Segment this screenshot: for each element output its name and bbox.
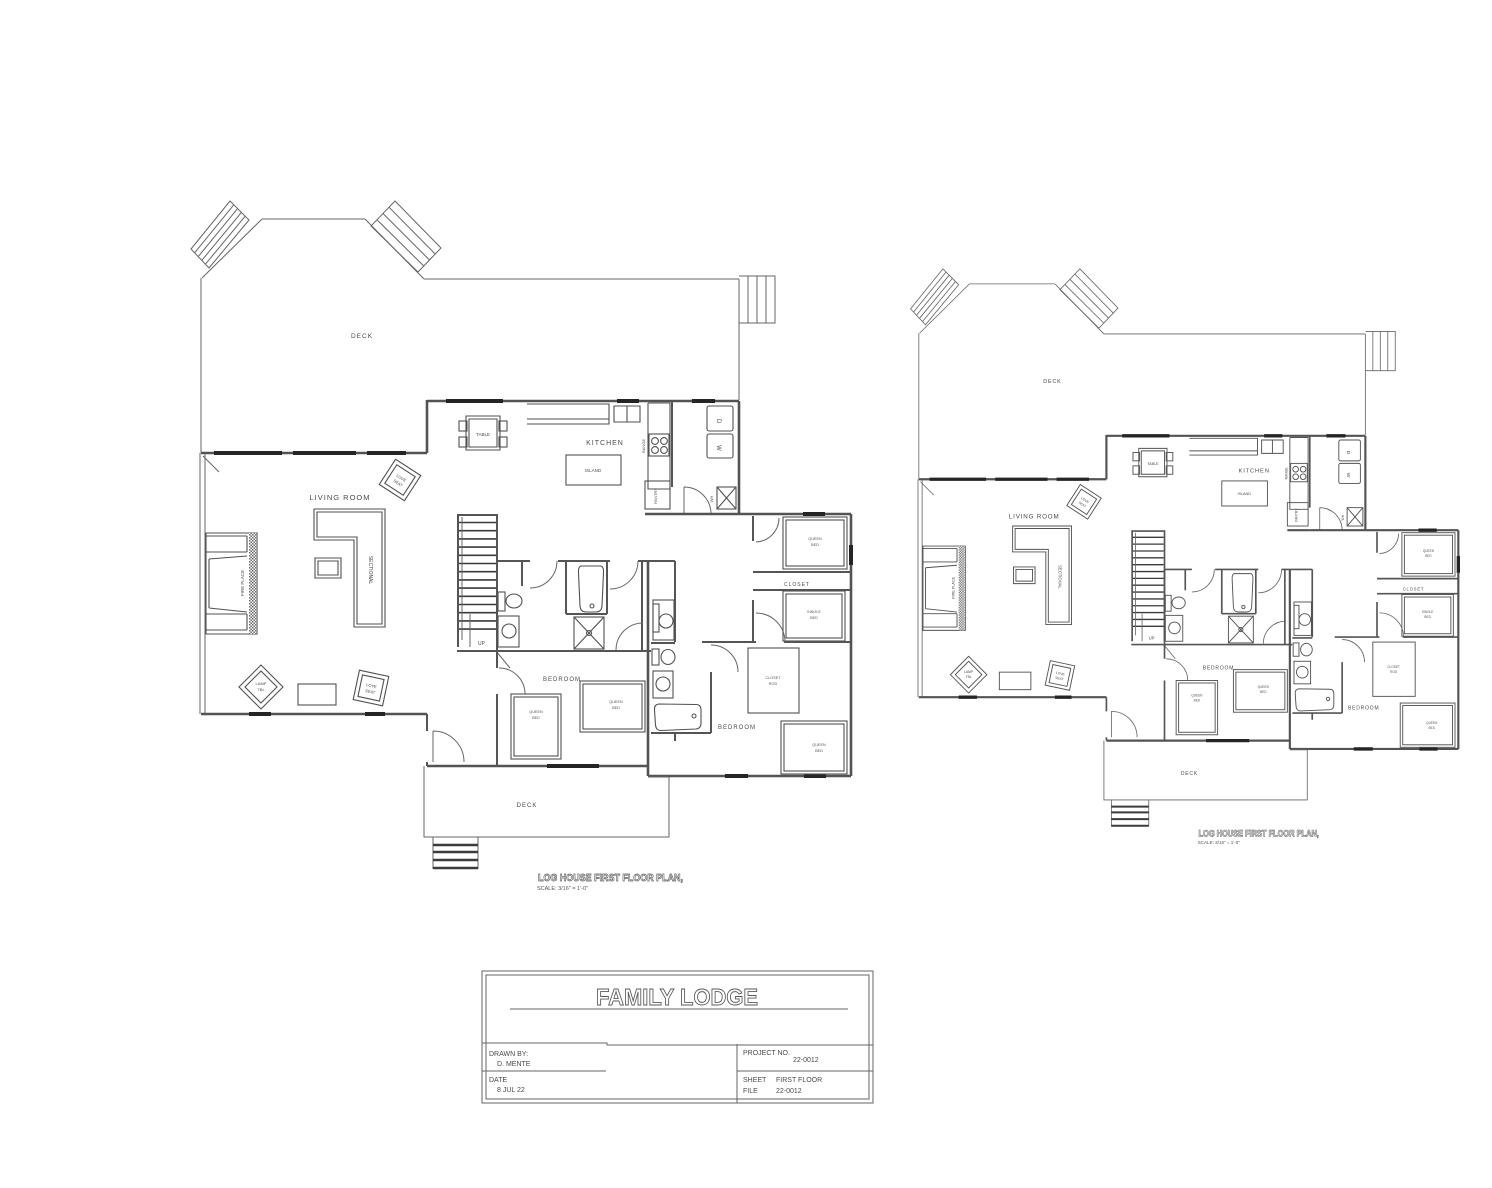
svg-text:FIRST FLOOR: FIRST FLOOR bbox=[776, 1077, 822, 1084]
svg-text:FAMILY LODGE: FAMILY LODGE bbox=[596, 984, 758, 1010]
svg-text:SHEET: SHEET bbox=[743, 1077, 767, 1084]
svg-text:8 JUL 22: 8 JUL 22 bbox=[497, 1087, 525, 1094]
svg-text:22-0012: 22-0012 bbox=[776, 1088, 802, 1095]
svg-text:DRAWN BY:: DRAWN BY: bbox=[489, 1051, 528, 1058]
svg-text:22-0012: 22-0012 bbox=[793, 1057, 819, 1064]
svg-text:FILE: FILE bbox=[743, 1088, 758, 1095]
svg-text:D. MENTE: D. MENTE bbox=[497, 1061, 531, 1068]
svg-text:PROJECT NO.: PROJECT NO. bbox=[743, 1050, 790, 1057]
svg-text:DATE: DATE bbox=[489, 1077, 507, 1084]
